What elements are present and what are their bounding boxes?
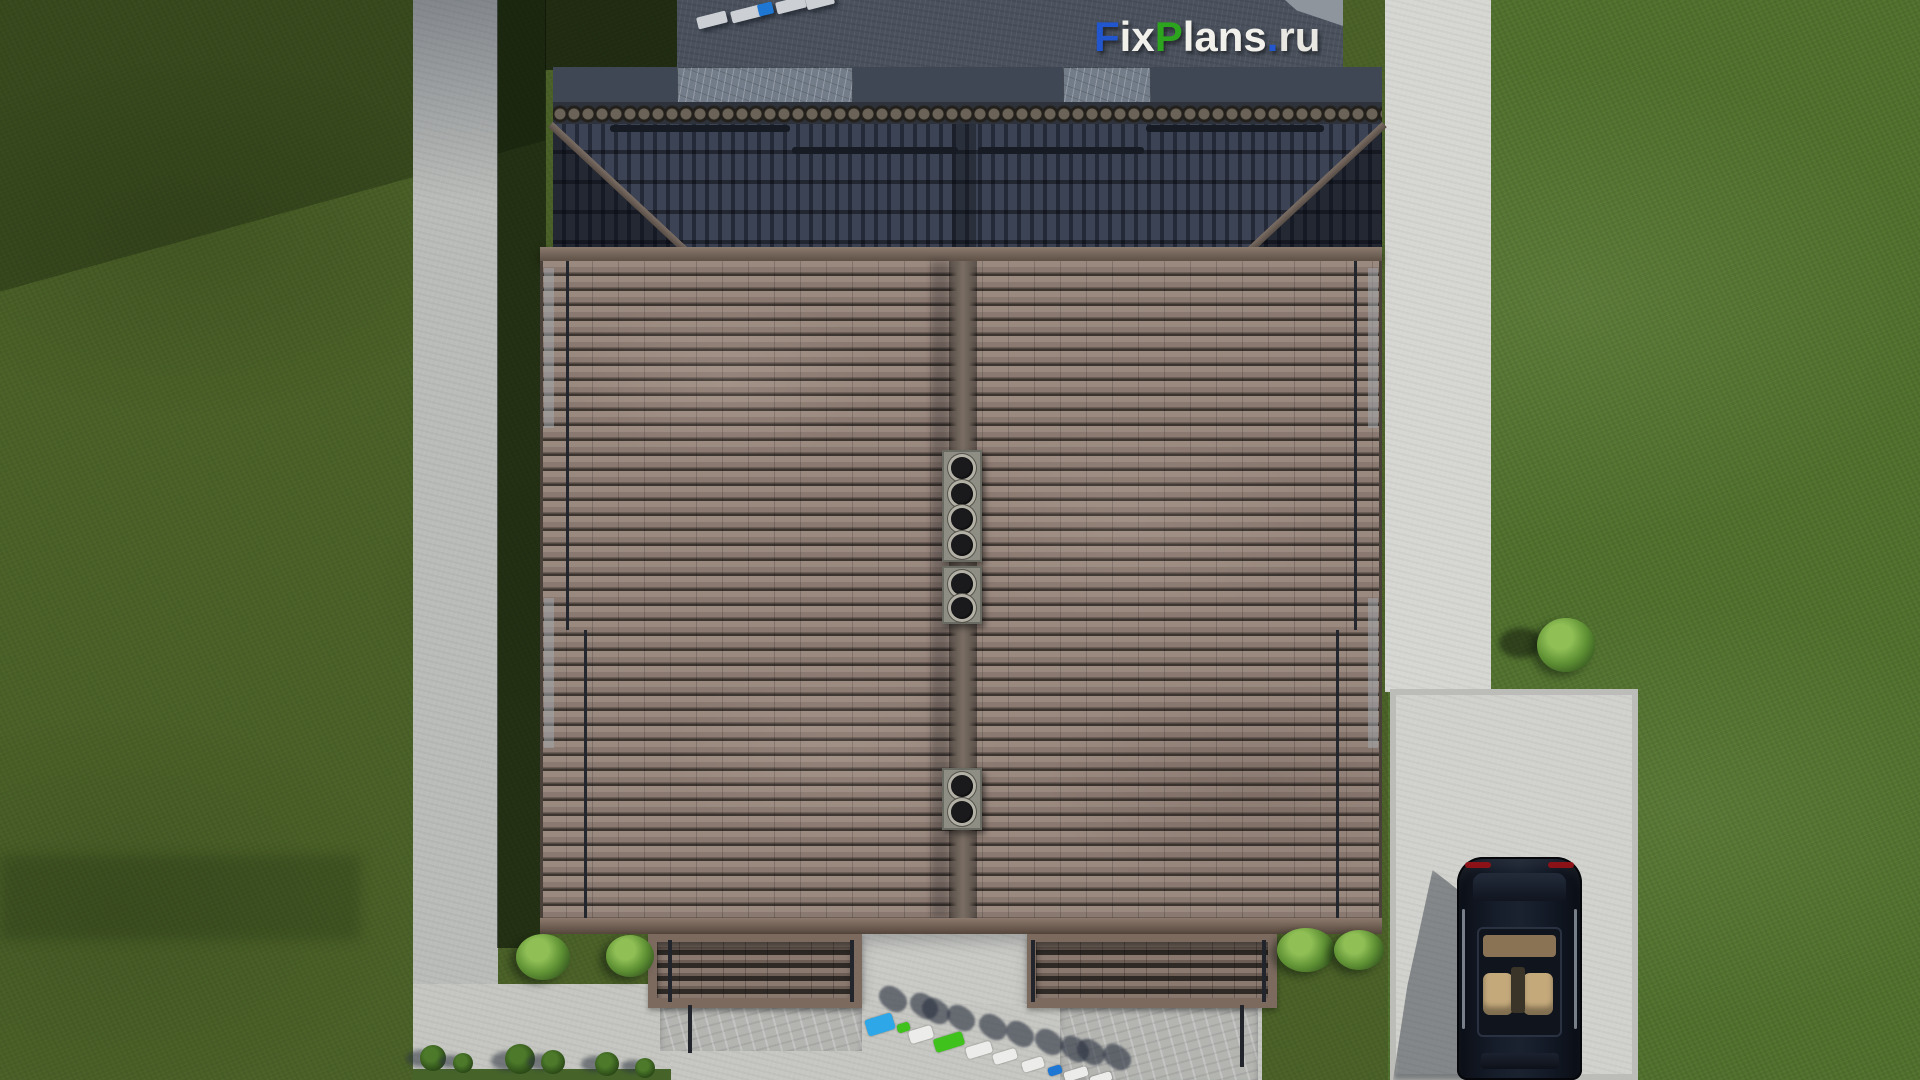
chimney-flue — [951, 508, 973, 530]
lightning-rod — [1336, 630, 1339, 918]
downspout-pipe — [1031, 940, 1035, 1002]
car-front-seat-right — [1523, 973, 1553, 1015]
scene: FixPlans.ru — [0, 0, 1920, 1080]
car-taillight-left — [1465, 862, 1491, 868]
car-rear-seat — [1483, 935, 1556, 957]
lightning-rod — [1354, 261, 1357, 630]
eave-tile-ends — [553, 102, 1382, 126]
chimney-flue — [951, 483, 973, 505]
logo-letter: F — [1094, 13, 1120, 60]
snow-guard-bar — [978, 147, 1144, 154]
shadow-notch-top — [545, 0, 679, 70]
logo: FixPlans.ru — [1094, 14, 1354, 64]
lightning-rod — [566, 261, 569, 630]
bush — [516, 934, 570, 980]
car — [1457, 857, 1582, 1080]
chimney-flue — [951, 573, 973, 595]
small-tree — [635, 1058, 655, 1078]
logo-letter: i — [1120, 13, 1132, 60]
snow-guard-bar — [792, 147, 958, 154]
left-path-shadow — [413, 0, 498, 200]
car-front-seat-left — [1483, 973, 1513, 1015]
logo-letter: . — [1267, 13, 1279, 60]
car-sill-left — [1462, 909, 1465, 1029]
logo-letter: a — [1194, 13, 1217, 60]
logo-letter: r — [1278, 13, 1294, 60]
logo-letter: u — [1295, 13, 1321, 60]
bush — [606, 935, 654, 977]
car-glass-roof — [1477, 927, 1562, 1037]
car-center-console — [1511, 967, 1525, 1013]
chimney-flue — [951, 775, 973, 797]
logo-letter: P — [1155, 13, 1183, 60]
downspout-pipe — [850, 940, 854, 1002]
stone-coping-segment — [1063, 67, 1151, 104]
right-porch-tiles — [1036, 942, 1268, 998]
small-tree — [453, 1053, 473, 1073]
logo-letter: x — [1131, 13, 1154, 60]
downspout-pipe — [668, 940, 672, 1002]
chimney-flue — [951, 597, 973, 619]
left-porch-roof — [648, 934, 862, 1008]
car-taillight-right — [1548, 862, 1574, 868]
snow-guard-bar — [1146, 125, 1324, 132]
car-windshield — [1481, 1053, 1559, 1069]
car-sill-right — [1574, 909, 1577, 1029]
downspout-pipe — [1262, 940, 1266, 1002]
stone-coping-segment — [677, 67, 853, 104]
main-fascia — [540, 918, 1382, 934]
lightning-rod — [584, 630, 587, 918]
chimney-flue — [951, 457, 973, 479]
logo-letter: s — [1243, 13, 1266, 60]
small-tree — [595, 1052, 619, 1076]
party-wall-upper — [952, 124, 976, 248]
left-porch-tiles — [657, 942, 853, 998]
logo-letter: n — [1218, 13, 1244, 60]
lawn-shadow-patch — [0, 855, 360, 940]
eave-gutter-strip — [1368, 598, 1378, 748]
downspout-pipe — [688, 1005, 692, 1053]
right-porch-roof — [1027, 934, 1277, 1008]
chimney-flue — [951, 801, 973, 823]
eave-gutter-strip — [1368, 268, 1378, 428]
main-ridge-board — [540, 247, 1382, 261]
bush — [1334, 930, 1384, 970]
car-rear-window — [1473, 873, 1566, 901]
downspout-pipe — [1240, 1005, 1244, 1067]
chimney-flue — [951, 534, 973, 556]
small-tree — [541, 1050, 565, 1074]
logo-letter: l — [1183, 13, 1195, 60]
eave-gutter-strip — [544, 268, 554, 428]
bush — [1277, 928, 1335, 972]
right-path — [1385, 0, 1491, 692]
eave-gutter-strip — [544, 598, 554, 748]
bush — [1537, 618, 1595, 672]
shadow-strip-left-of-house — [497, 0, 546, 948]
snow-guard-bar — [610, 125, 790, 132]
